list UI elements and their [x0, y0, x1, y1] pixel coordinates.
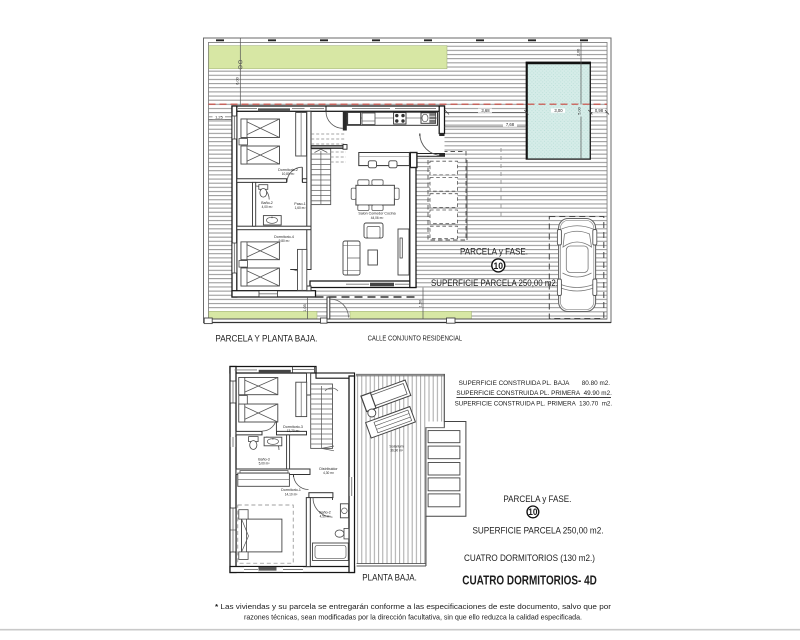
svg-text:14,10 m²: 14,10 m² — [285, 492, 298, 496]
svg-text:10: 10 — [494, 261, 504, 271]
svg-text:SUPERFICIE CONSTRUIDA PL. PRIM: SUPERFICIE CONSTRUIDA PL. PRIMERA 49.90 … — [456, 390, 612, 397]
svg-text:44,06 m²: 44,06 m² — [371, 216, 384, 220]
svg-text:PARCELA y FASE.: PARCELA y FASE. — [503, 494, 571, 504]
svg-text:10: 10 — [528, 507, 537, 517]
svg-text:PARCELA Y PLANTA BAJA.: PARCELA Y PLANTA BAJA. — [215, 333, 317, 343]
svg-text:1,25: 1,25 — [215, 115, 224, 120]
svg-text:razones técnicas, sean modific: razones técnicas, sean modificadas por l… — [244, 612, 582, 621]
svg-text:36,90 m²: 36,90 m² — [390, 449, 403, 453]
svg-text:SUPERFICIE CONSTRUIDA PL. BAJA: SUPERFICIE CONSTRUIDA PL. BAJA 80.80 m2. — [459, 380, 611, 387]
svg-text:0,98: 0,98 — [595, 108, 604, 113]
svg-text:CALLE CONJUNTO RESIDENCIAL: CALLE CONJUNTO RESIDENCIAL — [368, 333, 463, 342]
svg-text:PARCELA y FASE.: PARCELA y FASE. — [460, 246, 528, 256]
svg-text:3,68: 3,68 — [481, 108, 490, 113]
svg-text:2,00: 2,00 — [577, 49, 581, 56]
svg-text:1,50: 1,50 — [418, 300, 422, 307]
svg-text:13,70 m²: 13,70 m² — [287, 429, 300, 433]
svg-text:SUPERFICIE PARCELA 250,00 m2.: SUPERFICIE PARCELA 250,00 m2. — [473, 524, 604, 535]
svg-text:CUATRO DORMITORIOS- 4D: CUATRO DORMITORIOS- 4D — [462, 574, 597, 588]
svg-text:4,50 m²: 4,50 m² — [320, 514, 331, 518]
svg-text:5,00: 5,00 — [578, 107, 582, 114]
svg-text:SUPERFICIE PARCELA 250,00 m2.: SUPERFICIE PARCELA 250,00 m2. — [431, 278, 558, 289]
svg-text:PLANTA BAJA.: PLANTA BAJA. — [362, 572, 417, 582]
svg-text:1,05: 1,05 — [303, 304, 307, 311]
svg-text:4,00 m²: 4,00 m² — [262, 205, 273, 209]
svg-text:7,68: 7,68 — [506, 122, 515, 127]
svg-text:9,80 m²: 9,80 m² — [279, 239, 290, 243]
svg-text:SUPERFICIE CONSTRUIDA PL. PRIM: SUPERFICIE CONSTRUIDA PL. PRIMERA 130.70… — [455, 401, 613, 408]
svg-text:6,00: 6,00 — [236, 77, 240, 84]
svg-text:10,80 m²: 10,80 m² — [282, 172, 295, 176]
svg-text:CUATRO DORMITORIOS (130 m2.): CUATRO DORMITORIOS (130 m2.) — [464, 552, 595, 563]
svg-text:4,30 m²: 4,30 m² — [323, 471, 334, 475]
svg-text:* Las viviendas y su parcela s: * Las viviendas y su parcela se entregar… — [215, 602, 612, 611]
svg-text:5,00 m²: 5,00 m² — [259, 462, 270, 466]
svg-text:1,60 m²: 1,60 m² — [295, 206, 306, 210]
svg-text:3,00: 3,00 — [554, 108, 563, 113]
